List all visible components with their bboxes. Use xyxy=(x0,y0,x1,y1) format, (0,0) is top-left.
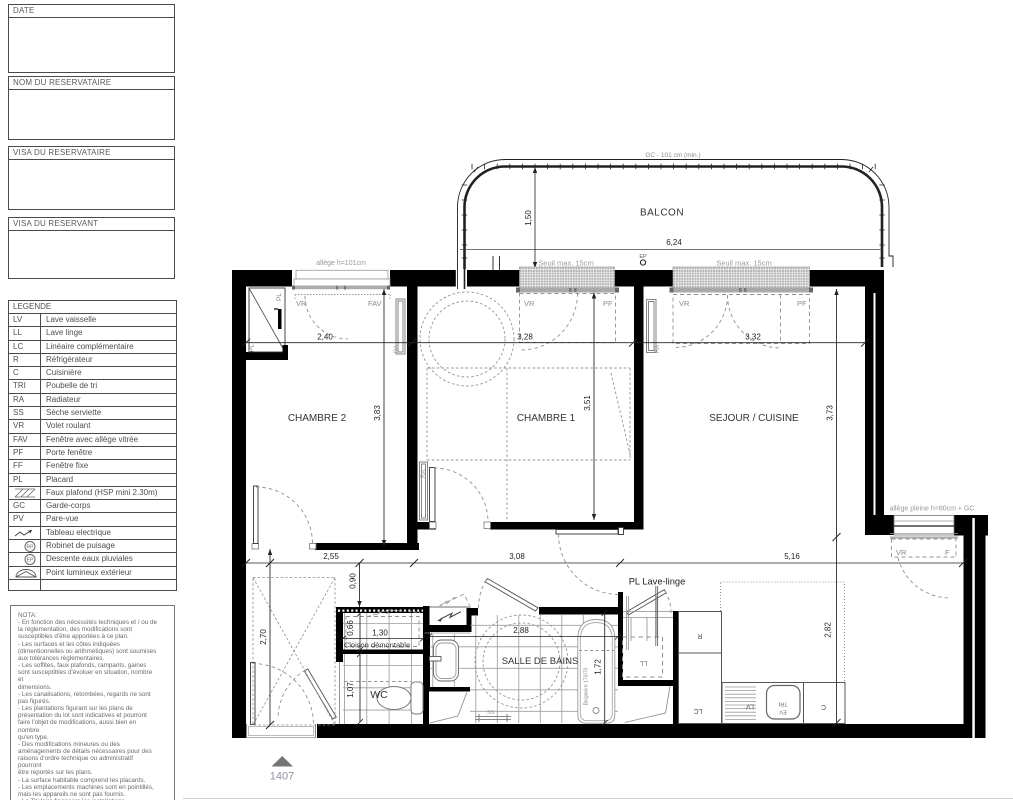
svg-text:VR: VR xyxy=(679,299,690,308)
svg-text:WC: WC xyxy=(370,689,388,701)
svg-text:2,40: 2,40 xyxy=(317,333,333,342)
svg-text:3,73: 3,73 xyxy=(826,405,835,421)
svg-text:SALLE DE BAINS: SALLE DE BAINS xyxy=(502,656,579,667)
svg-text:EV: EV xyxy=(779,709,787,715)
svg-text:2,88: 2,88 xyxy=(513,626,529,635)
svg-text:FAV: FAV xyxy=(368,299,382,308)
svg-text:PL: PL xyxy=(249,344,256,352)
svg-text:3,28: 3,28 xyxy=(517,333,533,342)
svg-text:R: R xyxy=(697,632,702,639)
svg-text:allège h=101cm: allège h=101cm xyxy=(316,260,366,267)
svg-text:1,72: 1,72 xyxy=(594,659,603,675)
svg-text:RA: RA xyxy=(421,470,427,478)
svg-text:1,30: 1,30 xyxy=(372,629,388,638)
svg-text:3,08: 3,08 xyxy=(509,552,525,561)
svg-text:0,90: 0,90 xyxy=(349,573,358,589)
svg-text:Seuil max. 15cm: Seuil max. 15cm xyxy=(716,259,771,268)
svg-text:3,83: 3,83 xyxy=(373,405,382,421)
svg-text:0,66: 0,66 xyxy=(346,620,355,636)
svg-text:GC - 101 cm (min.): GC - 101 cm (min.) xyxy=(645,152,700,159)
svg-text:3,51: 3,51 xyxy=(583,395,592,411)
svg-text:Seuil max. 15cm: Seuil max. 15cm xyxy=(538,259,593,268)
svg-text:1,07: 1,07 xyxy=(346,682,355,698)
svg-text:Baignoire 170/70: Baignoire 170/70 xyxy=(584,667,590,705)
svg-text:PF: PF xyxy=(603,299,613,308)
svg-text:2,55: 2,55 xyxy=(323,552,339,561)
svg-text:SEJOUR / CUISINE: SEJOUR / CUISINE xyxy=(709,413,799,424)
svg-text:C: C xyxy=(821,703,826,710)
svg-text:RA: RA xyxy=(394,345,400,353)
svg-text:PF: PF xyxy=(797,299,807,308)
svg-text:TRI: TRI xyxy=(778,701,787,707)
svg-text:5,16: 5,16 xyxy=(784,552,800,561)
svg-text:2,82: 2,82 xyxy=(824,622,833,638)
svg-text:LV: LV xyxy=(746,703,754,710)
svg-text:CHAMBRE 1: CHAMBRE 1 xyxy=(517,413,576,424)
svg-text:PL: PL xyxy=(276,293,283,301)
svg-text:VR: VR xyxy=(524,299,535,308)
svg-text:F: F xyxy=(945,548,950,557)
svg-text:VR: VR xyxy=(896,548,907,557)
svg-text:2,70: 2,70 xyxy=(259,629,268,645)
svg-text:VR: VR xyxy=(296,299,307,308)
svg-text:BALCON: BALCON xyxy=(640,208,684,219)
svg-text:Cloison démontable: Cloison démontable xyxy=(344,641,410,650)
svg-text:3,32: 3,32 xyxy=(745,333,761,342)
svg-text:PL Lave-linge: PL Lave-linge xyxy=(629,577,686,587)
svg-text:SS: SS xyxy=(487,710,495,716)
svg-text:1,50: 1,50 xyxy=(524,210,533,226)
svg-text:EP: EP xyxy=(639,254,647,260)
svg-text:6,24: 6,24 xyxy=(666,238,682,247)
svg-text:LC: LC xyxy=(694,707,703,714)
svg-text:1407: 1407 xyxy=(270,771,294,783)
svg-text:LL: LL xyxy=(640,659,648,666)
svg-text:RA: RA xyxy=(655,345,661,353)
svg-text:CHAMBRE 2: CHAMBRE 2 xyxy=(288,413,347,424)
svg-text:allège pleine h=80cm + GC: allège pleine h=80cm + GC xyxy=(890,506,975,513)
